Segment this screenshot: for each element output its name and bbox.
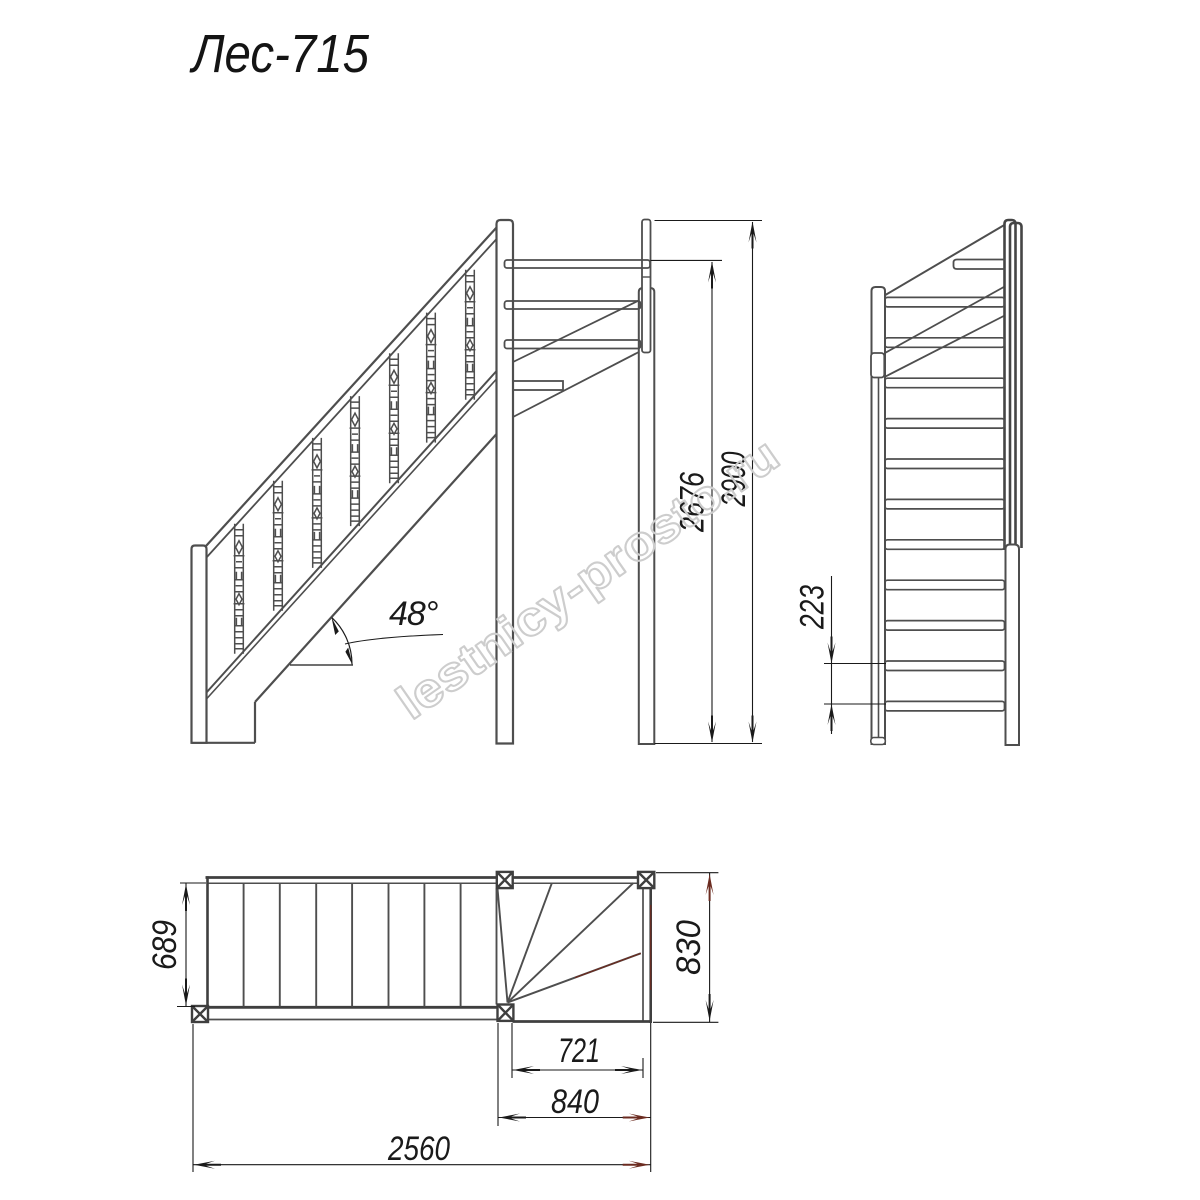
svg-text:689: 689: [146, 920, 184, 970]
svg-text:830: 830: [670, 920, 708, 975]
svg-text:223: 223: [794, 585, 832, 630]
svg-text:2560: 2560: [387, 1130, 450, 1168]
svg-text:721: 721: [558, 1032, 600, 1070]
svg-text:840: 840: [551, 1083, 599, 1121]
svg-text:48°: 48°: [389, 595, 438, 633]
svg-text:Лес-715: Лес-715: [189, 24, 369, 84]
